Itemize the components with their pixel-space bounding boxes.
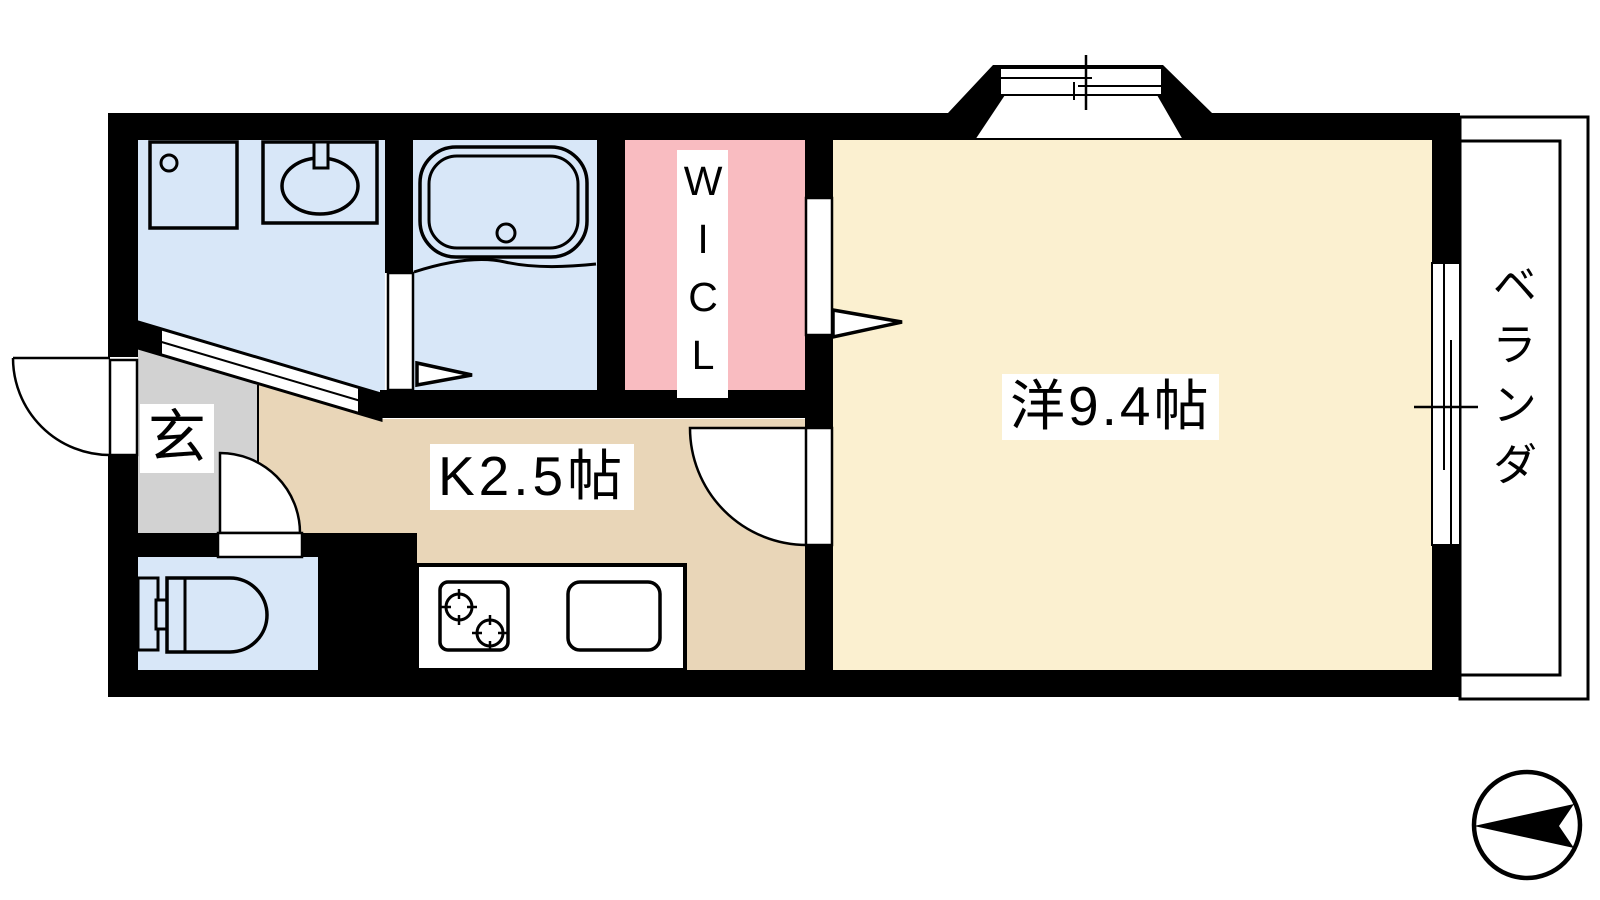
closet-door-leaf: [806, 198, 832, 335]
wall-mid-seg3: [805, 545, 833, 670]
washbasin-tap-icon: [314, 142, 328, 168]
floorplan-drawing: [0, 0, 1600, 900]
walk-in-closet-label: WICL: [677, 150, 728, 398]
wall-top-left: [108, 113, 950, 140]
wall-top-right: [1212, 113, 1460, 140]
wall-toilet-block: [318, 533, 417, 697]
bay-window-glass: [1000, 68, 1162, 95]
wall-right-lower: [1432, 545, 1460, 697]
wall-mid-seg1: [805, 140, 833, 198]
wall-left-upper: [108, 113, 138, 357]
kitchen-door-leaf: [806, 428, 832, 545]
western-room-label: 洋9.4帖: [1002, 374, 1219, 440]
toilet-bowl-icon: [167, 578, 267, 652]
bay-window-inner: [975, 95, 1183, 140]
wall-toilet-top-right: [302, 533, 318, 557]
toilet-door-leaf: [218, 533, 302, 557]
kitchen-sink-icon: [568, 582, 660, 650]
wall-washroom-bathroom: [385, 140, 413, 273]
veranda-window: [1432, 263, 1460, 545]
floorplan-page: 玄 K2.5帖 洋9.4帖 WICL ベランダ: [0, 0, 1600, 900]
wall-bottom: [108, 670, 1460, 697]
kitchen-label: K2.5帖: [430, 444, 634, 510]
wall-left-lower: [108, 455, 138, 697]
wall-mid-seg2: [805, 335, 833, 428]
entrance-door-leaf: [110, 360, 137, 455]
entrance-label: 玄: [140, 404, 214, 473]
wall-horizontal-band: [380, 390, 805, 418]
wall-bathroom-closet: [597, 140, 625, 418]
wall-toilet-top-left: [138, 533, 218, 557]
veranda-label: ベランダ: [1483, 253, 1538, 509]
entrance-door-arc: [13, 358, 110, 455]
wall-right-upper: [1432, 113, 1460, 263]
bathroom-door-leaf: [388, 273, 413, 390]
